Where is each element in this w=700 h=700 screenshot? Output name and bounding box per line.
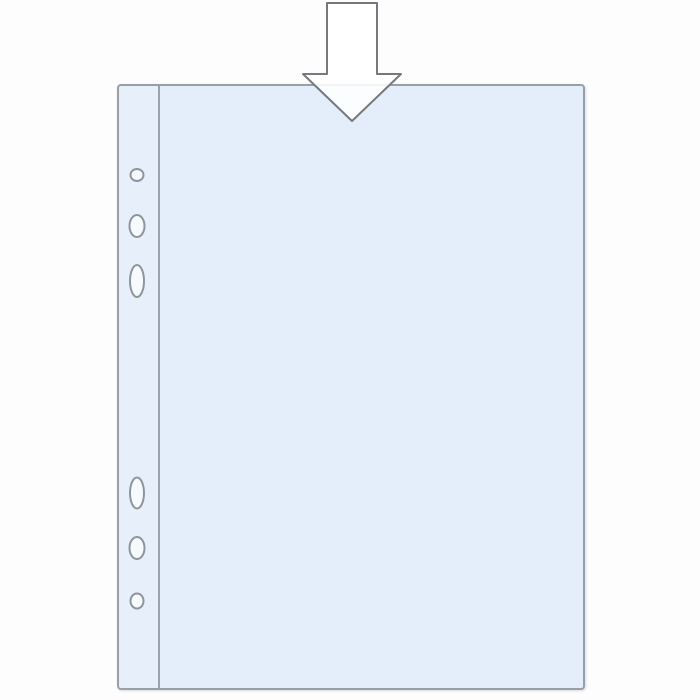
punch-hole-4 — [130, 478, 144, 509]
sheet-protector-body — [118, 85, 584, 689]
punch-hole-3 — [130, 265, 144, 297]
sheet-protector — [118, 85, 584, 689]
punch-hole-6 — [131, 594, 144, 609]
punch-hole-1 — [131, 169, 144, 181]
punched-pocket-illustration — [0, 0, 700, 700]
product-image — [0, 0, 700, 700]
punch-hole-5 — [130, 537, 145, 559]
punch-hole-2 — [130, 215, 145, 237]
